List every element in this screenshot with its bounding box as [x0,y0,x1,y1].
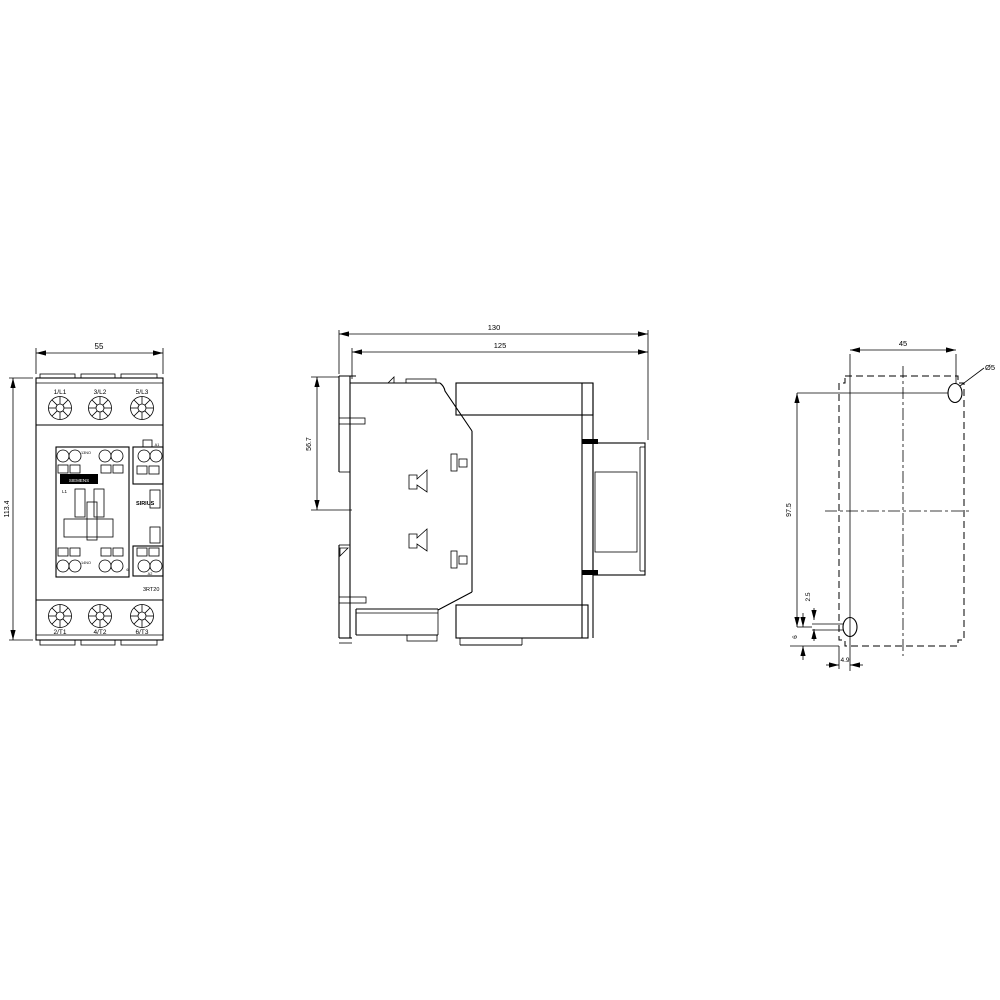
front-aux-column: A1 SIRIUS A2 6. 3RT20 [126,440,163,593]
front-width-value: 55 [95,342,104,351]
technical-drawing: 1/L1 3/L2 5/L3 2/T1 4/T2 6/T3 13NO SIEME… [0,0,1000,1000]
front-view: 1/L1 3/L2 5/L3 2/T1 4/T2 6/T3 13NO SIEME… [4,342,163,645]
family-label: SIRIUS [136,501,155,507]
terminal-screw [131,397,154,420]
terminal-label-2T1: 2/T1 [53,629,66,636]
terminal-screw [89,397,112,420]
brand-plate-label: SIEMENS [69,478,89,483]
aux-contact-bottom-label: 14NO [81,561,91,565]
side-body-depth-dimension: 125 [352,341,648,379]
terminal-label-6T3: 6/T3 [135,629,148,636]
coil-a1-label: A1 [155,443,160,447]
screwdriver-slot-icon [409,470,427,492]
front-height-dimension: 113.4 [4,378,33,640]
hole-spacing-h-dimension: 45 [850,339,956,353]
slot-offset-value: 2.5 [805,592,812,601]
terminal-label-4T2: 4/T2 [93,629,106,636]
hole-spacing-v-dimension: 97.5 [786,393,800,627]
terminal-screw [131,605,154,628]
terminal-label-3L2: 3/L2 [94,389,107,396]
front-body-outline [36,378,163,640]
aux-contact-top-label: 13NO [81,451,91,455]
slot-width-value: 4.9 [840,657,849,664]
side-body-depth-value: 125 [494,341,507,350]
terminal-screw [89,605,112,628]
terminal-6-label: 6. [126,568,129,572]
coil-a2-label: A2 [148,572,153,576]
side-rail-offset-dimension: 56.7 [306,377,352,510]
bottom-offset-value: 6 [792,635,799,639]
terminal-screw [49,605,72,628]
front-width-dimension: 55 [36,342,163,374]
side-total-depth-value: 130 [488,323,501,332]
terminal-screw [49,397,72,420]
slot-width-dimension: 4.9 [826,657,863,668]
terminal-label-5L3: 5/L3 [136,389,149,396]
terminal-label-1L1: 1/L1 [54,389,67,396]
screwdriver-slot-icon [409,529,427,551]
hole-spacing-h-value: 45 [899,339,907,348]
phase-label: L1 [62,489,68,494]
side-terminal-block [582,439,645,575]
side-view: 130 125 56.7 [306,323,648,645]
hole-spacing-v-value: 97.5 [786,503,793,517]
product-label: 3RT20 [143,587,159,593]
slot-offset-dimension: 2.5 [805,592,817,641]
drill-plan: Ø5 45 97.5 [786,339,995,671]
side-rail-offset-value: 56.7 [306,437,313,451]
mounting-hole-top [948,384,962,403]
dimension-drawing-page: 1/L1 3/L2 5/L3 2/T1 4/T2 6/T3 13NO SIEME… [0,0,1000,1000]
front-center-module: 13NO SIEMENS L1 14NO [56,447,129,577]
front-height-value: 113.4 [4,500,11,517]
hole-diameter-label: Ø5 [985,363,995,372]
